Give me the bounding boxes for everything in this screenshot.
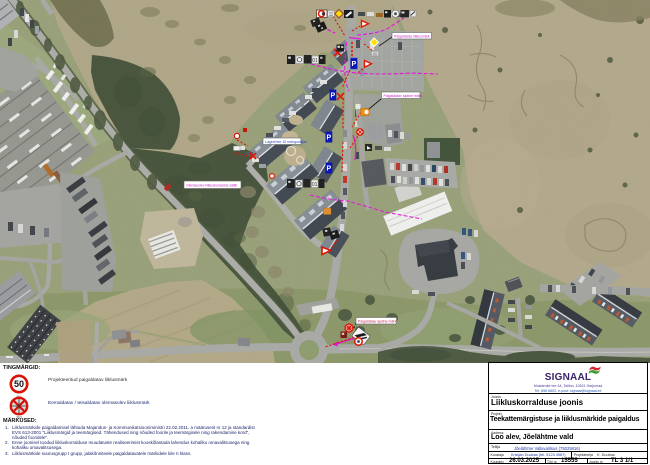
svg-text:Olemasolev liikluskorraldus sä: Olemasolev liikluskorraldus säilib	[186, 184, 237, 188]
svg-text:Paigaldatav ajutine märk: Paigaldatav ajutine märk	[384, 94, 423, 98]
svg-text:P: P	[330, 93, 335, 100]
svg-text:P: P	[326, 135, 331, 142]
svg-text:50: 50	[14, 379, 24, 389]
svg-text:P: P	[326, 166, 331, 173]
svg-text:01: 01	[312, 182, 318, 188]
svg-text:Paigaldatav liiklusmärk: Paigaldatav liiklusmärk	[394, 35, 430, 39]
svg-text:Lagedi tee 10 mänguväljak: Lagedi tee 10 mänguväljak	[265, 140, 307, 144]
svg-text:P: P	[351, 61, 356, 68]
svg-text:01: 01	[312, 58, 318, 64]
svg-text:Paigaldatav ajutine märk: Paigaldatav ajutine märk	[358, 320, 397, 324]
